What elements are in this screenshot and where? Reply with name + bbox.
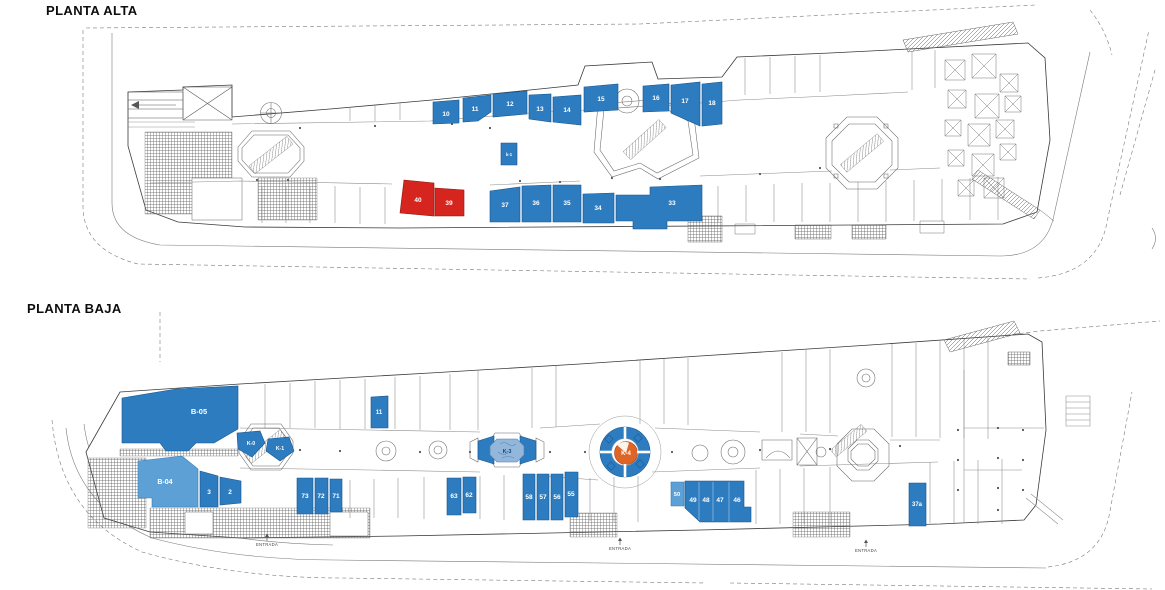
unit-3[interactable] bbox=[200, 471, 218, 507]
unit-13[interactable] bbox=[529, 94, 551, 122]
unit-62[interactable] bbox=[463, 477, 476, 513]
unit-37[interactable] bbox=[490, 187, 520, 222]
unit-2[interactable] bbox=[220, 477, 241, 505]
entrance-label: ENTRADA bbox=[855, 548, 877, 553]
unit-72[interactable] bbox=[315, 478, 328, 514]
unit-12[interactable] bbox=[493, 91, 527, 117]
unit-46-49[interactable] bbox=[685, 481, 751, 522]
unit-18[interactable] bbox=[702, 82, 722, 126]
entrance-arrow-icon bbox=[618, 538, 622, 542]
stairs-icon bbox=[1066, 402, 1090, 420]
unit-14[interactable] bbox=[553, 95, 581, 125]
unit-k-1[interactable] bbox=[501, 143, 517, 165]
unit-40[interactable] bbox=[400, 180, 434, 216]
unit-55[interactable] bbox=[565, 472, 578, 517]
unit-10[interactable] bbox=[433, 100, 459, 124]
unit-39[interactable] bbox=[435, 188, 464, 216]
entrance-label: ENTRADA bbox=[256, 542, 278, 547]
unit-K-3[interactable] bbox=[490, 439, 524, 462]
unit-57[interactable] bbox=[537, 474, 549, 520]
unit-63[interactable] bbox=[447, 478, 461, 515]
planta-alta-base-drawing bbox=[83, 5, 1155, 279]
entrance-arrow-icon bbox=[864, 540, 868, 544]
unit-35[interactable] bbox=[553, 185, 581, 222]
unit-15[interactable] bbox=[584, 84, 618, 112]
mall-floorplan-svg: 101112131415161718k-140393736353433 bbox=[0, 0, 1165, 590]
unit-11[interactable] bbox=[371, 396, 388, 428]
unit-71[interactable] bbox=[330, 479, 342, 512]
unit-56[interactable] bbox=[551, 474, 563, 520]
unit-37a[interactable] bbox=[909, 483, 926, 526]
unit-73[interactable] bbox=[297, 478, 313, 514]
unit-16[interactable] bbox=[643, 84, 669, 112]
floorplan-canvas: PLANTA ALTA PLANTA BAJA bbox=[0, 0, 1165, 590]
unit-36[interactable] bbox=[522, 185, 551, 222]
unit-58[interactable] bbox=[523, 474, 535, 520]
unit-50[interactable] bbox=[671, 482, 684, 506]
unit-34[interactable] bbox=[583, 193, 614, 223]
spiral-stair-icon bbox=[261, 103, 282, 124]
entrance-label: ENTRADA bbox=[609, 546, 631, 551]
